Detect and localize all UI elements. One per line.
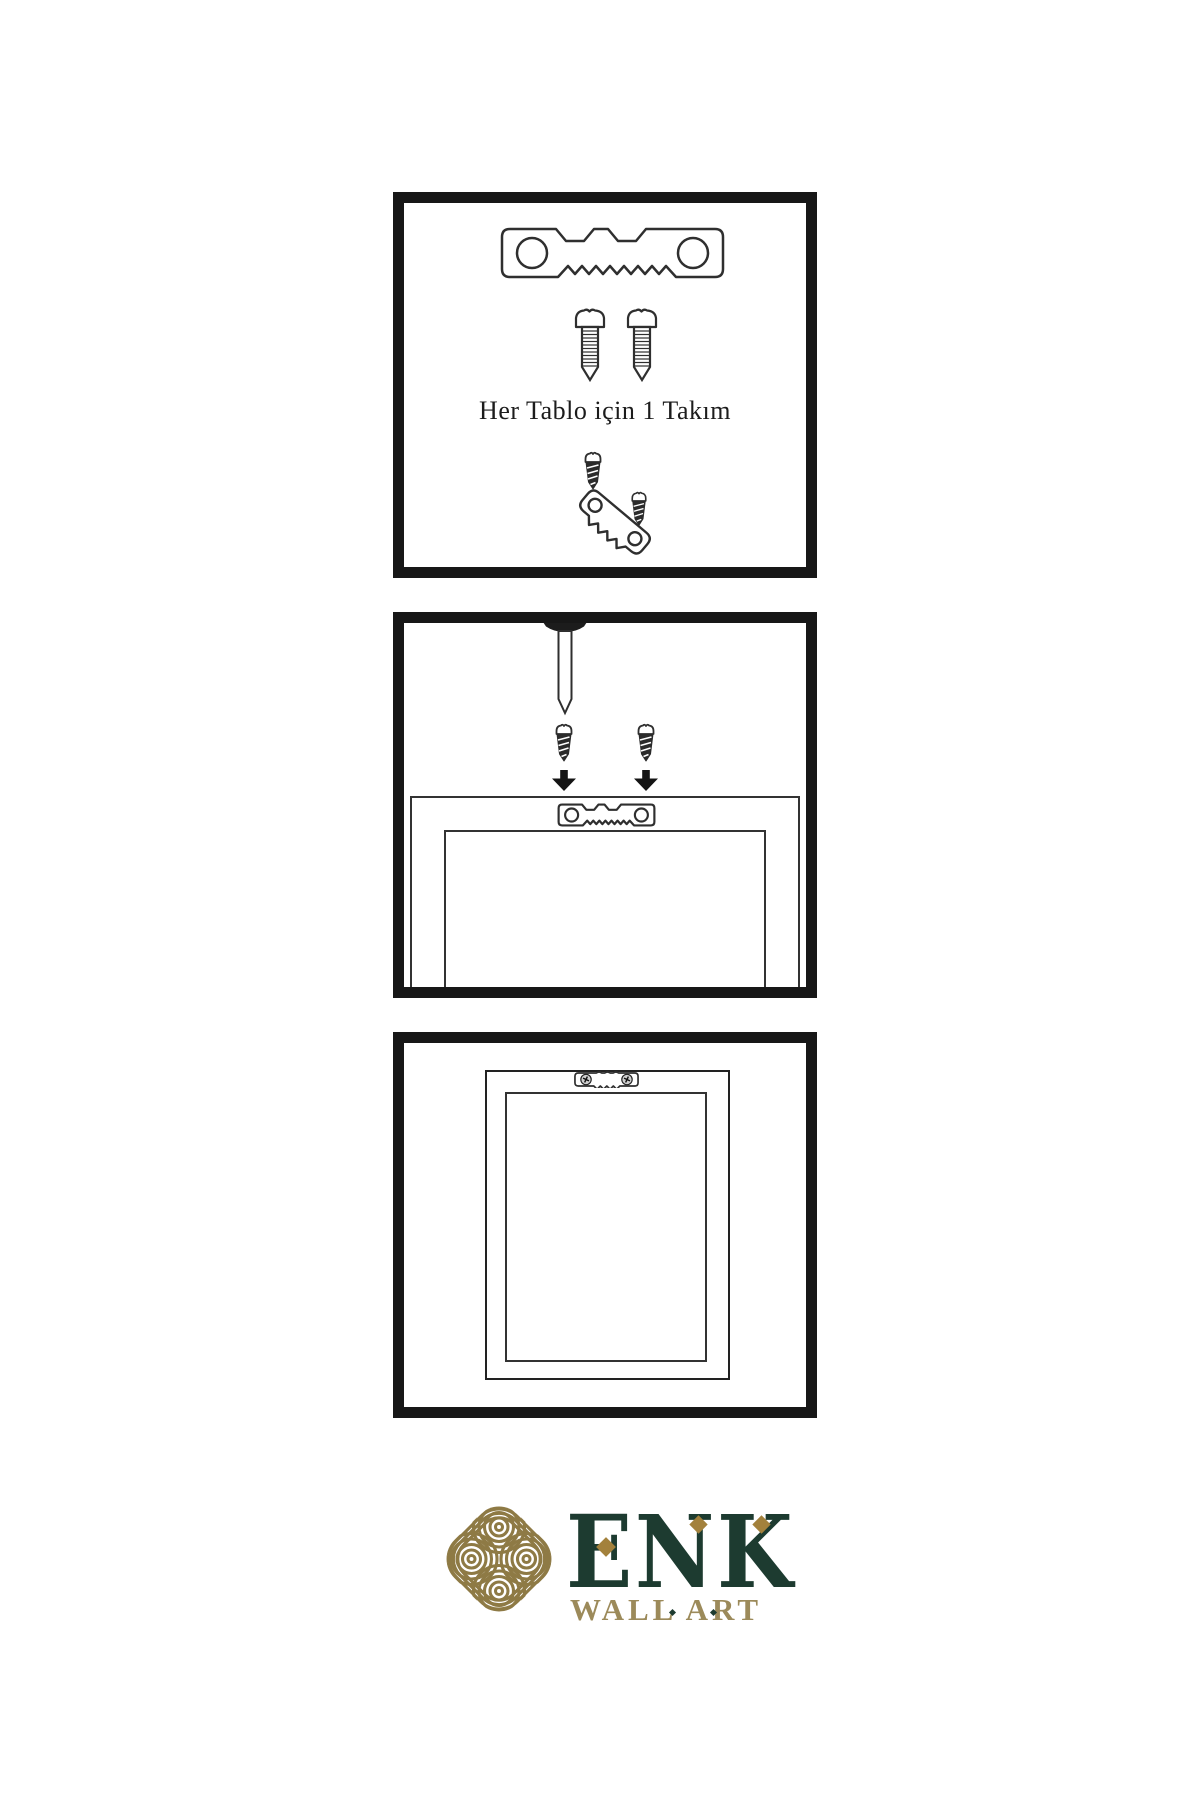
nail-icon [542, 622, 588, 718]
arrow-down-icon [634, 770, 658, 791]
dark-screw-icon [636, 720, 656, 766]
panel-hanging-step [393, 1032, 817, 1418]
sawtooth-hanger-icon [496, 223, 729, 283]
knot-logo-icon [435, 1488, 563, 1632]
panel-hardware-kit: Her Tablo için 1 Takım [393, 192, 817, 578]
screw-icon [573, 307, 607, 385]
frame-front-inner-edge [505, 1092, 707, 1362]
panel-mounting-step [393, 612, 817, 998]
arrow-down-icon [552, 770, 576, 791]
frame-back-inner-edge [444, 830, 766, 996]
kit-caption: Her Tablo için 1 Takım [404, 396, 806, 426]
sawtooth-hanger-with-screws-icon [573, 1071, 640, 1088]
brand-name: ENK [566, 1504, 775, 1604]
instruction-sheet: Her Tablo için 1 Takım [0, 0, 1200, 1800]
brand-subtitle: WALL ART [570, 1592, 810, 1628]
dark-screw-icon [629, 491, 649, 527]
sawtooth-hanger-icon [555, 802, 658, 828]
dark-screw-icon [583, 451, 603, 491]
dark-screw-icon [554, 720, 574, 766]
screw-icon [625, 307, 659, 385]
